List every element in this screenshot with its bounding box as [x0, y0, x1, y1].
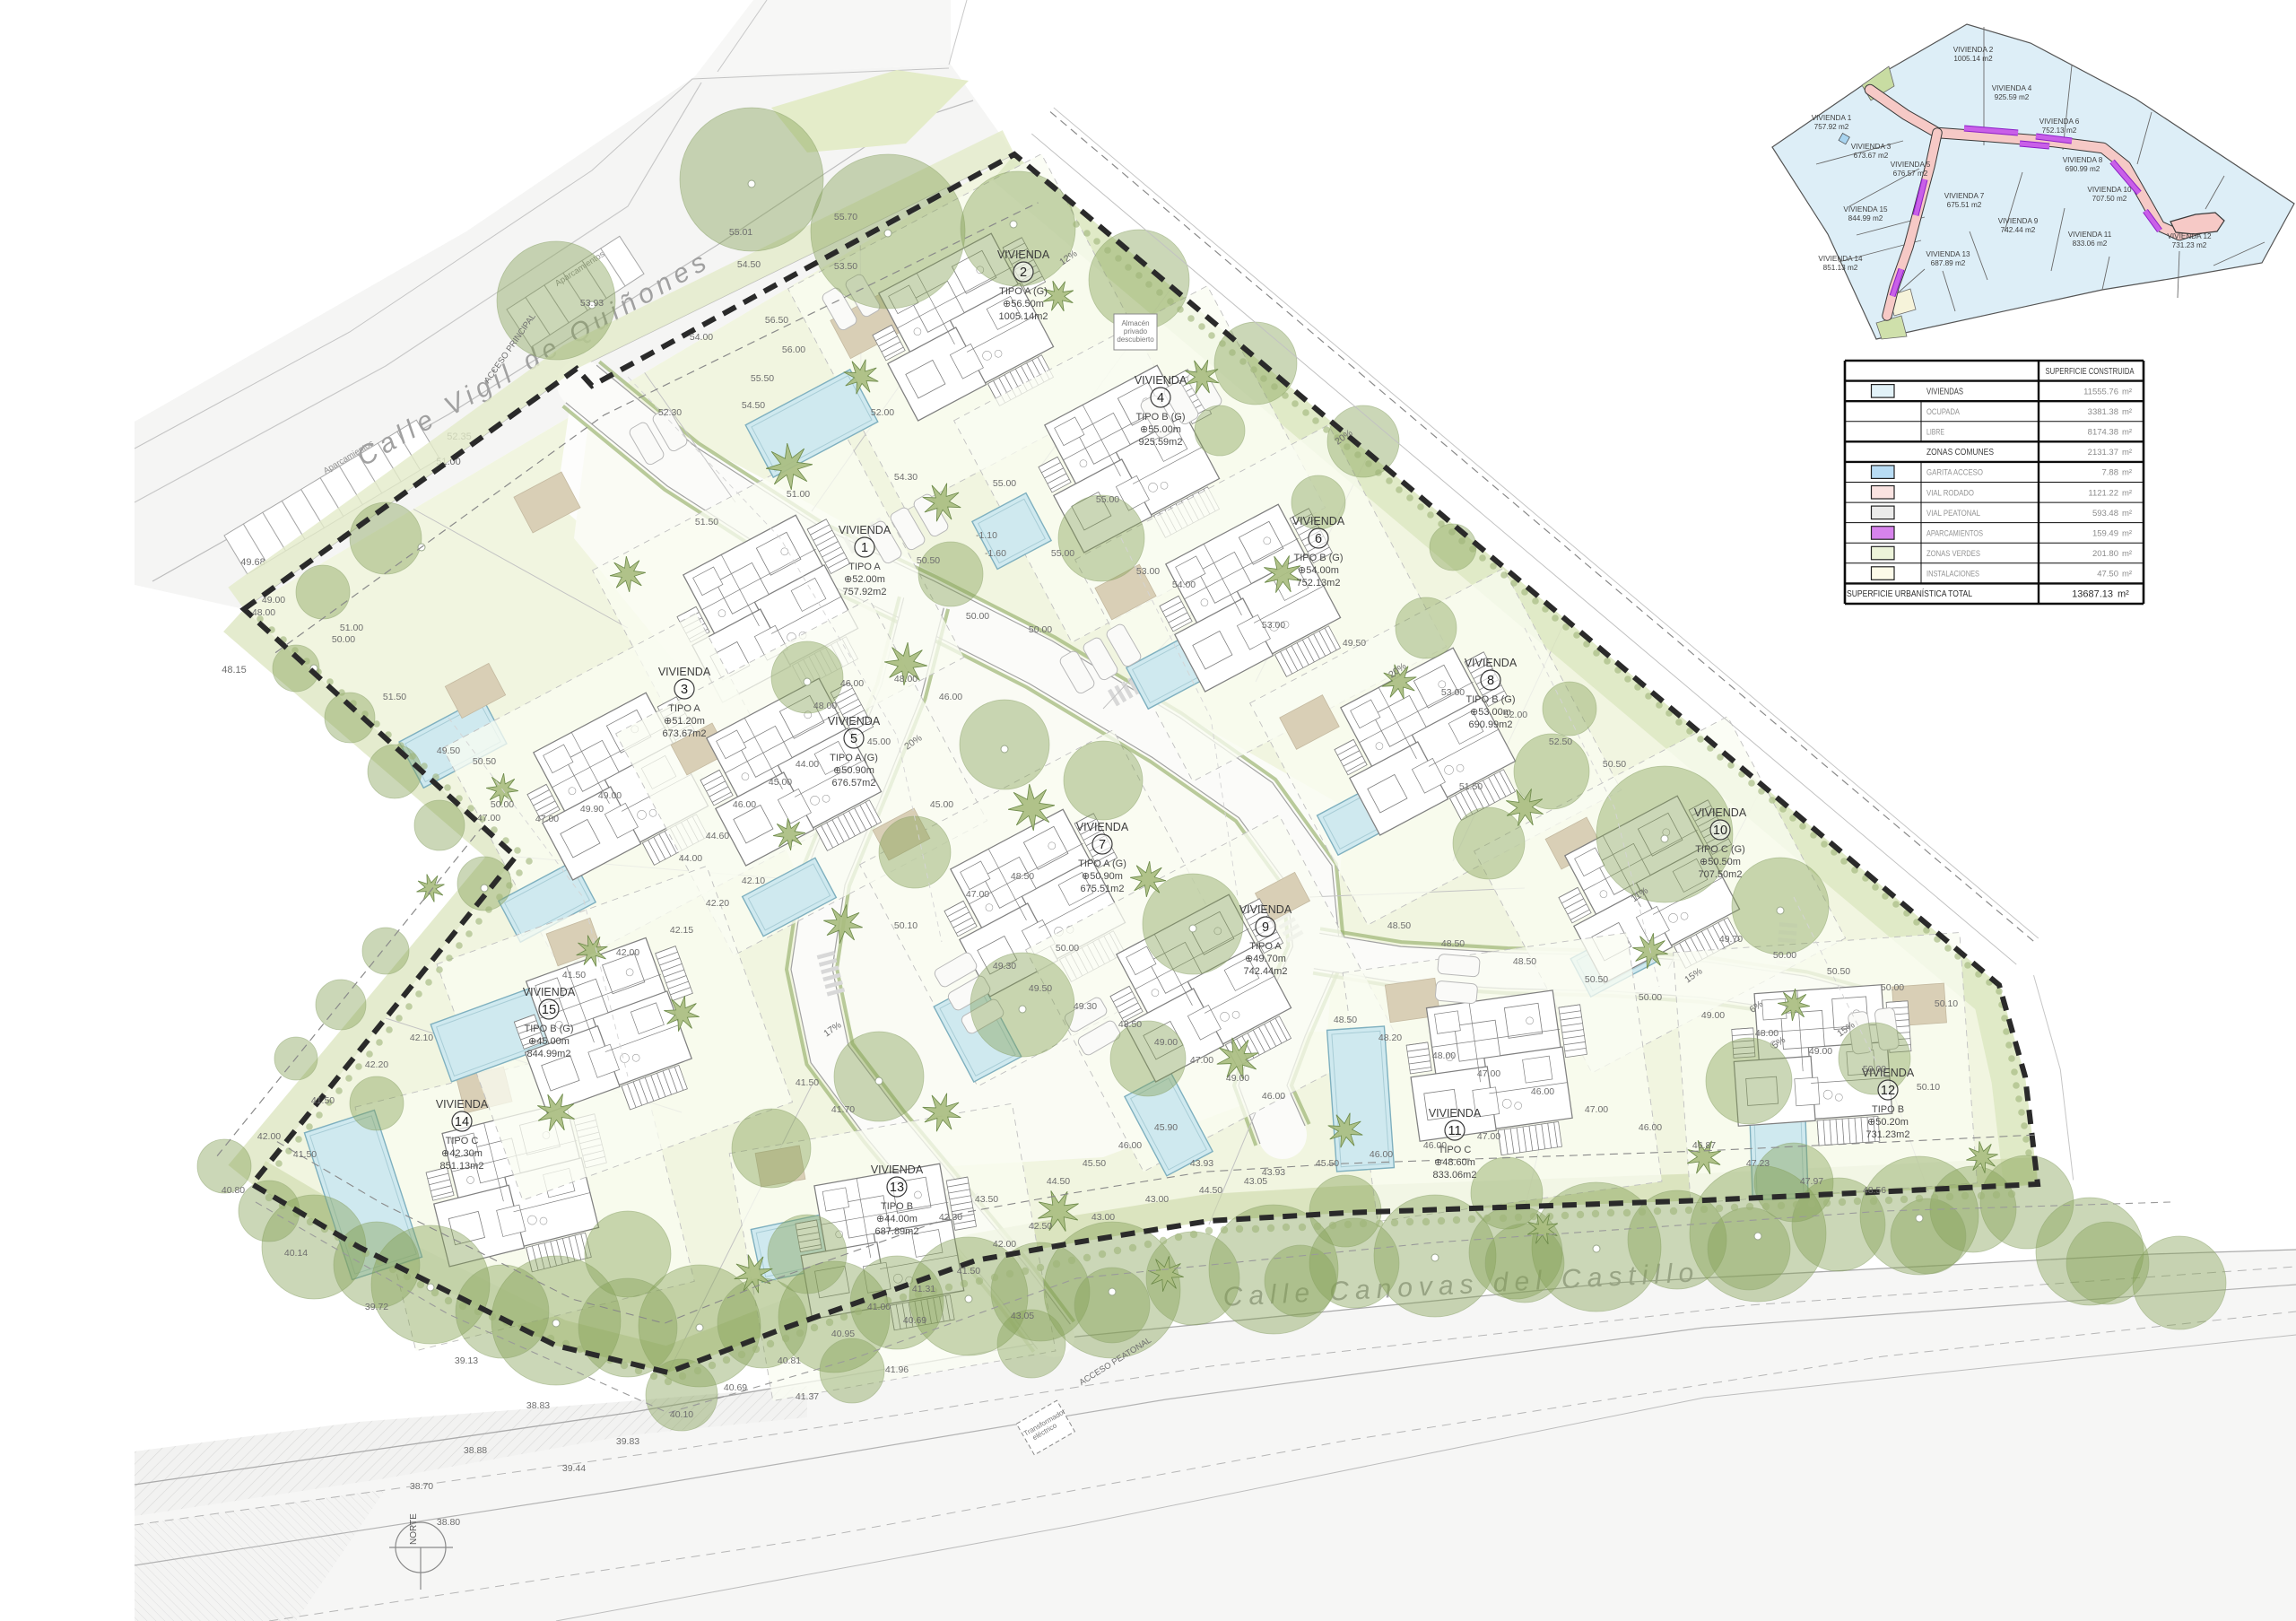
svg-text:privado: privado [1124, 327, 1148, 336]
svg-text:42.50: 42.50 [1029, 1221, 1052, 1232]
svg-text:48.15: 48.15 [222, 665, 247, 675]
svg-text:40.14: 40.14 [284, 1248, 308, 1259]
svg-text:7: 7 [1099, 838, 1106, 852]
svg-text:m²: m² [2122, 488, 2132, 498]
svg-text:VIVIENDA: VIVIENDA [1429, 1107, 1482, 1120]
svg-text:47.00: 47.00 [1585, 1104, 1608, 1115]
svg-text:47.00: 47.00 [1477, 1068, 1500, 1079]
svg-text:2: 2 [1020, 266, 1027, 280]
svg-text:VIVIENDAS: VIVIENDAS [1926, 387, 1963, 397]
svg-text:46.00: 46.00 [939, 692, 962, 702]
svg-text:42.20: 42.20 [365, 1059, 388, 1070]
svg-text:43.50: 43.50 [975, 1194, 998, 1205]
svg-text:38.80: 38.80 [437, 1517, 460, 1528]
svg-text:51.50: 51.50 [695, 517, 718, 527]
svg-text:53.00: 53.00 [1262, 620, 1285, 631]
svg-text:50.00: 50.00 [1639, 992, 1662, 1003]
svg-text:41.96: 41.96 [885, 1364, 909, 1375]
svg-text:⊕52.00m: ⊕52.00m [844, 574, 885, 585]
svg-text:NORTE: NORTE [409, 1513, 419, 1545]
svg-text:VIVIENDA: VIVIENDA [1239, 903, 1292, 916]
svg-text:49.50: 49.50 [1029, 983, 1052, 994]
svg-text:53.00: 53.00 [1136, 566, 1160, 577]
svg-text:SUPERFICIE CONSTRUIDA: SUPERFICIE CONSTRUIDA [2046, 367, 2135, 377]
svg-text:49.00: 49.00 [1809, 1046, 1832, 1057]
svg-text:m²: m² [2122, 387, 2132, 397]
svg-text:TIPO C (G): TIPO C (G) [1695, 844, 1745, 855]
svg-text:45.50: 45.50 [1083, 1158, 1106, 1169]
svg-text:TIPO A (G): TIPO A (G) [1078, 858, 1126, 869]
svg-text:TIPO C: TIPO C [446, 1136, 479, 1146]
svg-text:49.50: 49.50 [437, 745, 460, 756]
svg-text:⊕54.00m: ⊕54.00m [1298, 565, 1339, 576]
svg-text:m²: m² [2122, 570, 2132, 580]
svg-text:VIVIENDA 14: VIVIENDA 14 [1818, 255, 1863, 263]
svg-text:50.50: 50.50 [1585, 974, 1608, 985]
svg-text:50.10: 50.10 [1917, 1082, 1940, 1093]
svg-text:54.50: 54.50 [737, 259, 761, 270]
svg-text:38.70: 38.70 [410, 1481, 433, 1492]
svg-text:TIPO B (G): TIPO B (G) [1466, 694, 1516, 705]
svg-text:40.80: 40.80 [222, 1185, 245, 1196]
svg-text:40.69: 40.69 [724, 1382, 747, 1393]
svg-text:53.93: 53.93 [580, 298, 604, 309]
svg-text:VIVIENDA 4: VIVIENDA 4 [1992, 84, 2032, 92]
svg-text:INSTALACIONES: INSTALACIONES [1926, 570, 1979, 580]
svg-text:VIVIENDA: VIVIENDA [658, 666, 711, 678]
svg-text:55.00: 55.00 [993, 478, 1016, 489]
svg-text:descubierto: descubierto [1117, 336, 1154, 344]
svg-text:ZONAS VERDES: ZONAS VERDES [1926, 549, 1980, 559]
svg-text:56.50: 56.50 [765, 315, 788, 326]
svg-text:2131.37: 2131.37 [2088, 448, 2118, 458]
svg-text:46.00: 46.00 [1370, 1149, 1393, 1160]
svg-text:VIAL PEATONAL: VIAL PEATONAL [1926, 509, 1980, 519]
svg-text:48.00: 48.00 [252, 607, 275, 618]
svg-text:49.50: 49.50 [1343, 638, 1366, 649]
svg-text:50.00: 50.00 [1863, 1064, 1886, 1075]
svg-text:844.99m2: 844.99m2 [527, 1049, 571, 1059]
svg-text:46.00: 46.00 [1639, 1122, 1662, 1133]
svg-text:3381.38: 3381.38 [2088, 407, 2118, 417]
svg-text:43.00: 43.00 [1091, 1212, 1115, 1223]
svg-text:45.00: 45.00 [867, 736, 891, 747]
svg-text:43.93: 43.93 [1190, 1158, 1213, 1169]
svg-text:m²: m² [2122, 549, 2132, 559]
svg-text:673.67 m2: 673.67 m2 [1854, 152, 1889, 160]
svg-text:49.70: 49.70 [1719, 934, 1743, 945]
svg-text:50.00: 50.00 [332, 634, 355, 645]
svg-text:52.30: 52.30 [658, 407, 682, 418]
svg-text:VIAL RODADO: VIAL RODADO [1926, 488, 1974, 498]
svg-text:47.00: 47.00 [1190, 1055, 1213, 1066]
svg-text:45.00: 45.00 [769, 777, 792, 788]
svg-text:1005.14 m2: 1005.14 m2 [1953, 55, 1993, 63]
svg-text:15: 15 [542, 1003, 556, 1017]
svg-text:m²: m² [2122, 509, 2132, 519]
svg-text:⊕55.00m: ⊕55.00m [1140, 424, 1181, 435]
svg-text:41.50: 41.50 [957, 1266, 980, 1277]
svg-text:48.56: 48.56 [1863, 1185, 1886, 1196]
svg-text:50.00: 50.00 [491, 799, 514, 810]
svg-text:39.44: 39.44 [562, 1463, 586, 1474]
svg-text:1121.22: 1121.22 [2088, 488, 2118, 498]
svg-text:46.87: 46.87 [1692, 1140, 1716, 1151]
svg-text:12: 12 [1881, 1084, 1895, 1098]
svg-text:51.50: 51.50 [1459, 781, 1483, 792]
svg-text:47.97: 47.97 [1800, 1176, 1823, 1187]
svg-text:55.01: 55.01 [729, 227, 752, 238]
svg-text:49.00: 49.00 [262, 595, 285, 606]
svg-text:42.30: 42.30 [939, 1212, 962, 1223]
svg-text:40.10: 40.10 [670, 1409, 693, 1420]
svg-text:833.06 m2: 833.06 m2 [2073, 240, 2108, 248]
svg-text:VIVIENDA: VIVIENDA [1292, 515, 1345, 527]
svg-text:VIVIENDA 3: VIVIENDA 3 [1851, 143, 1892, 151]
svg-text:56.00: 56.00 [782, 344, 805, 355]
svg-text:VIVIENDA 11: VIVIENDA 11 [2068, 231, 2112, 239]
svg-text:VIVIENDA: VIVIENDA [828, 715, 881, 728]
svg-text:44.50: 44.50 [1047, 1176, 1070, 1187]
svg-text:VIVIENDA 12: VIVIENDA 12 [2167, 232, 2212, 240]
svg-text:43.93: 43.93 [1262, 1167, 1285, 1178]
svg-text:752.13 m2: 752.13 m2 [2042, 126, 2077, 135]
svg-text:13687.13: 13687.13 [2072, 589, 2113, 600]
svg-text:49.00: 49.00 [1154, 1037, 1178, 1048]
svg-text:47.50: 47.50 [2097, 570, 2118, 580]
svg-text:53.00: 53.00 [1441, 687, 1465, 698]
svg-text:925.59m2: 925.59m2 [1139, 437, 1183, 448]
svg-text:VIVIENDA 13: VIVIENDA 13 [1926, 250, 1970, 258]
svg-text:51.50: 51.50 [383, 692, 406, 702]
svg-text:VIVIENDA 8: VIVIENDA 8 [2063, 156, 2103, 164]
svg-text:675.51 m2: 675.51 m2 [1947, 201, 1982, 209]
svg-text:43.00: 43.00 [1145, 1194, 1169, 1205]
svg-text:8174.38: 8174.38 [2088, 428, 2118, 438]
svg-text:41.50: 41.50 [562, 970, 586, 980]
svg-text:593.48: 593.48 [2092, 509, 2118, 519]
svg-text:49.00: 49.00 [1226, 1073, 1249, 1084]
svg-text:46.00: 46.00 [1118, 1140, 1142, 1151]
svg-text:687.89 m2: 687.89 m2 [1931, 259, 1966, 267]
svg-text:48.50: 48.50 [1441, 938, 1465, 949]
svg-text:52.00: 52.00 [1504, 710, 1527, 720]
svg-text:m²: m² [2122, 468, 2132, 478]
svg-text:41.37: 41.37 [796, 1391, 819, 1402]
svg-text:TIPO B: TIPO B [1872, 1104, 1904, 1115]
svg-text:50.00: 50.00 [1773, 950, 1796, 961]
svg-text:⊕44.00m: ⊕44.00m [876, 1214, 918, 1224]
svg-text:833.06m2: 833.06m2 [1433, 1170, 1477, 1181]
svg-text:46.00: 46.00 [1262, 1091, 1285, 1102]
svg-text:9: 9 [1262, 920, 1269, 935]
svg-text:46.00: 46.00 [1531, 1086, 1554, 1097]
svg-text:851.13 m2: 851.13 m2 [1823, 264, 1858, 272]
svg-text:54.00: 54.00 [1172, 580, 1196, 590]
svg-text:38.88: 38.88 [464, 1445, 487, 1456]
svg-text:42.00: 42.00 [257, 1131, 281, 1142]
svg-text:⊕49.70m: ⊕49.70m [1245, 954, 1286, 964]
svg-text:44.60: 44.60 [706, 831, 729, 841]
svg-text:Almacén: Almacén [1121, 319, 1149, 327]
svg-text:VIVIENDA 6: VIVIENDA 6 [2039, 118, 2080, 126]
svg-text:m²: m² [2122, 528, 2132, 538]
svg-text:13: 13 [890, 1181, 904, 1195]
svg-text:851.13m2: 851.13m2 [440, 1161, 484, 1172]
svg-text:14: 14 [455, 1115, 469, 1129]
svg-text:OCUPADA: OCUPADA [1926, 407, 1961, 417]
svg-text:42.20: 42.20 [706, 898, 729, 909]
svg-text:VIVIENDA: VIVIENDA [1694, 806, 1747, 819]
svg-text:54.00: 54.00 [690, 332, 713, 343]
svg-text:VIVIENDA: VIVIENDA [839, 524, 891, 536]
svg-text:48.20: 48.20 [1378, 1033, 1402, 1043]
svg-text:40.95: 40.95 [831, 1329, 855, 1339]
svg-text:5: 5 [850, 732, 857, 746]
svg-text:50.50: 50.50 [1827, 966, 1850, 977]
svg-text:50.10: 50.10 [894, 920, 918, 931]
svg-text:42.00: 42.00 [616, 947, 639, 958]
svg-text:50.00: 50.00 [1029, 624, 1052, 635]
svg-text:48.00: 48.00 [1755, 1028, 1779, 1039]
svg-text:44.00: 44.00 [679, 853, 702, 864]
svg-text:39.72: 39.72 [365, 1302, 388, 1312]
svg-text:42.10: 42.10 [410, 1033, 433, 1043]
svg-text:54.50: 54.50 [742, 400, 765, 411]
svg-text:⊕50.90m: ⊕50.90m [833, 765, 874, 776]
svg-text:44.50: 44.50 [1199, 1185, 1222, 1196]
svg-text:49.30: 49.30 [993, 961, 1016, 972]
svg-text:VIVIENDA: VIVIENDA [1135, 374, 1187, 387]
svg-text:VIVIENDA: VIVIENDA [997, 248, 1050, 261]
svg-text:707.50 m2: 707.50 m2 [2092, 195, 2127, 203]
svg-text:38.83: 38.83 [526, 1400, 550, 1411]
svg-text:45.50: 45.50 [1316, 1158, 1339, 1169]
svg-text:m²: m² [2122, 407, 2132, 417]
svg-text:VIVIENDA: VIVIENDA [436, 1098, 489, 1111]
svg-text:⊕42.30m: ⊕42.30m [441, 1148, 483, 1159]
svg-text:742.44 m2: 742.44 m2 [2001, 226, 2036, 234]
svg-text:45.00: 45.00 [930, 799, 953, 810]
svg-text:55.00: 55.00 [1096, 494, 1119, 505]
svg-text:42.10: 42.10 [742, 876, 765, 886]
svg-text:48.00: 48.00 [894, 674, 918, 684]
svg-text:TIPO A (G): TIPO A (G) [830, 753, 878, 763]
svg-text:675.51m2: 675.51m2 [1081, 884, 1125, 894]
svg-text:VIVIENDA: VIVIENDA [871, 1163, 924, 1176]
svg-text:48.50: 48.50 [1118, 1019, 1142, 1030]
svg-text:47.00: 47.00 [477, 813, 500, 824]
svg-text:40.69: 40.69 [903, 1315, 926, 1326]
svg-text:TIPO A (G): TIPO A (G) [999, 286, 1048, 297]
svg-text:1005.14m2: 1005.14m2 [998, 311, 1048, 322]
svg-text:47.00: 47.00 [1477, 1131, 1500, 1142]
svg-text:VIVIENDA: VIVIENDA [523, 986, 576, 998]
svg-text:49.00: 49.00 [1701, 1010, 1725, 1021]
svg-text:742.44m2: 742.44m2 [1244, 966, 1288, 977]
svg-text:39.13: 39.13 [455, 1355, 478, 1366]
svg-text:VIVIENDA 15: VIVIENDA 15 [1843, 205, 1888, 214]
svg-text:925.59 m2: 925.59 m2 [1995, 93, 2030, 101]
svg-text:m²: m² [2118, 589, 2129, 600]
svg-text:ZONAS COMUNES: ZONAS COMUNES [1926, 448, 1994, 458]
svg-text:41.50: 41.50 [311, 1095, 335, 1106]
svg-text:VIVIENDA 2: VIVIENDA 2 [1953, 46, 1994, 54]
svg-text:673.67m2: 673.67m2 [663, 728, 707, 739]
svg-text:m²: m² [2122, 448, 2132, 458]
svg-text:41.00: 41.00 [867, 1302, 891, 1312]
svg-text:50.00: 50.00 [966, 611, 989, 622]
svg-text:VIVIENDA: VIVIENDA [1076, 821, 1129, 833]
svg-text:41.50: 41.50 [796, 1077, 819, 1088]
svg-text:50.50: 50.50 [917, 555, 940, 566]
svg-text:159.49: 159.49 [2092, 528, 2118, 538]
svg-text:49.90: 49.90 [580, 804, 604, 815]
svg-text:VIVIENDA: VIVIENDA [1465, 657, 1518, 669]
svg-text:201.80: 201.80 [2092, 549, 2118, 559]
svg-text:50.00: 50.00 [1056, 943, 1079, 954]
svg-text:51.00: 51.00 [787, 489, 810, 500]
svg-text:-1.60: -1.60 [985, 548, 1006, 559]
svg-text:VIVIENDA 1: VIVIENDA 1 [1812, 114, 1852, 122]
svg-text:41.50: 41.50 [293, 1149, 317, 1160]
svg-text:55.70: 55.70 [834, 212, 857, 222]
svg-text:45.90: 45.90 [1154, 1122, 1178, 1133]
svg-text:46.00: 46.00 [840, 678, 864, 689]
svg-text:676.57m2: 676.57m2 [832, 778, 876, 789]
svg-text:731.23 m2: 731.23 m2 [2172, 241, 2207, 249]
svg-text:4: 4 [1157, 391, 1164, 405]
svg-text:707.50m2: 707.50m2 [1699, 869, 1743, 880]
svg-text:48.50: 48.50 [1011, 871, 1034, 882]
svg-text:TIPO B (G): TIPO B (G) [1294, 553, 1344, 563]
svg-text:55.00: 55.00 [1051, 548, 1074, 559]
svg-text:42.15: 42.15 [670, 925, 693, 936]
svg-text:m²: m² [2122, 428, 2132, 438]
svg-text:50.50: 50.50 [1603, 759, 1626, 770]
svg-text:47.00: 47.00 [535, 814, 559, 824]
svg-text:11555.76: 11555.76 [2083, 387, 2118, 397]
svg-text:41.70: 41.70 [831, 1104, 855, 1115]
svg-text:TIPO B (G): TIPO B (G) [1136, 412, 1186, 423]
svg-text:50.50: 50.50 [473, 756, 496, 767]
svg-text:VIVIENDA 9: VIVIENDA 9 [1998, 217, 2039, 225]
svg-text:41.31: 41.31 [912, 1284, 935, 1294]
svg-text:52.50: 52.50 [1549, 736, 1572, 747]
svg-text:50.00: 50.00 [1881, 982, 1904, 993]
svg-text:LIBRE: LIBRE [1926, 428, 1944, 438]
svg-text:TIPO A: TIPO A [848, 562, 881, 572]
svg-text:⊕48.60m: ⊕48.60m [1434, 1157, 1475, 1168]
svg-text:TIPO B: TIPO B [881, 1201, 913, 1212]
svg-text:752.13m2: 752.13m2 [1297, 578, 1341, 588]
svg-text:757.92m2: 757.92m2 [843, 587, 887, 597]
svg-text:46.00: 46.00 [733, 799, 756, 810]
svg-text:VIVIENDA 7: VIVIENDA 7 [1944, 192, 1985, 200]
svg-text:54.30: 54.30 [894, 472, 918, 483]
svg-text:7.88: 7.88 [2102, 468, 2119, 478]
svg-text:⊕56.50m: ⊕56.50m [1003, 299, 1044, 309]
svg-text:52.00: 52.00 [871, 407, 894, 418]
svg-text:757.92 m2: 757.92 m2 [1814, 123, 1849, 131]
svg-text:TIPO A: TIPO A [668, 703, 700, 714]
svg-text:44.00: 44.00 [796, 759, 819, 770]
svg-text:⊕50.90m: ⊕50.90m [1082, 871, 1123, 882]
svg-text:VIVIENDA 5: VIVIENDA 5 [1891, 161, 1931, 169]
svg-text:43.05: 43.05 [1011, 1311, 1034, 1321]
svg-text:⊕50.50m: ⊕50.50m [1700, 857, 1741, 867]
svg-text:SUPERFICIE URBANÍSTICA TOTAL: SUPERFICIE URBANÍSTICA TOTAL [1847, 588, 1972, 599]
svg-text:676.57 m2: 676.57 m2 [1893, 170, 1928, 178]
svg-text:55.50: 55.50 [751, 373, 774, 384]
svg-text:39.83: 39.83 [616, 1436, 639, 1447]
svg-text:48.50: 48.50 [1387, 920, 1411, 931]
svg-text:48.50: 48.50 [1513, 956, 1536, 967]
svg-text:GARITA ACCESO: GARITA ACCESO [1926, 468, 1983, 478]
svg-text:51.00: 51.00 [340, 623, 363, 633]
svg-text:⊕51.20m: ⊕51.20m [664, 716, 705, 727]
svg-text:6: 6 [1315, 532, 1322, 546]
svg-text:731.23m2: 731.23m2 [1866, 1129, 1910, 1140]
svg-text:844.99 m2: 844.99 m2 [1848, 214, 1883, 222]
svg-text:47.00: 47.00 [966, 889, 989, 900]
svg-text:-1.10: -1.10 [976, 530, 997, 541]
svg-text:687.89m2: 687.89m2 [875, 1226, 919, 1237]
svg-text:690.99 m2: 690.99 m2 [2066, 165, 2100, 173]
svg-text:46.00: 46.00 [1423, 1140, 1447, 1151]
svg-text:48.50: 48.50 [1334, 1015, 1357, 1025]
svg-text:TIPO B (G): TIPO B (G) [525, 1024, 574, 1034]
svg-text:1: 1 [861, 541, 868, 555]
svg-text:49.30: 49.30 [1074, 1001, 1097, 1012]
svg-text:53.50: 53.50 [834, 261, 857, 272]
svg-text:TIPO A: TIPO A [1249, 941, 1282, 952]
svg-text:8: 8 [1487, 674, 1494, 688]
svg-text:11: 11 [1448, 1124, 1461, 1138]
svg-text:42.00: 42.00 [993, 1239, 1016, 1250]
svg-text:⊕50.20m: ⊕50.20m [1867, 1117, 1909, 1128]
svg-text:APARCAMIENTOS: APARCAMIENTOS [1926, 528, 1983, 538]
svg-text:50.10: 50.10 [1935, 998, 1958, 1009]
svg-text:⊕45.00m: ⊕45.00m [528, 1036, 570, 1047]
svg-text:VIVIENDA 10: VIVIENDA 10 [2087, 186, 2132, 194]
svg-text:3: 3 [681, 683, 688, 697]
svg-text:48.00: 48.00 [1432, 1050, 1456, 1061]
svg-text:48.00: 48.00 [813, 701, 837, 711]
svg-text:10: 10 [1713, 824, 1727, 838]
svg-text:40.81: 40.81 [778, 1355, 801, 1366]
svg-text:47.23: 47.23 [1746, 1158, 1770, 1169]
svg-text:690.99m2: 690.99m2 [1469, 719, 1513, 730]
svg-text:49.00: 49.00 [598, 790, 622, 801]
